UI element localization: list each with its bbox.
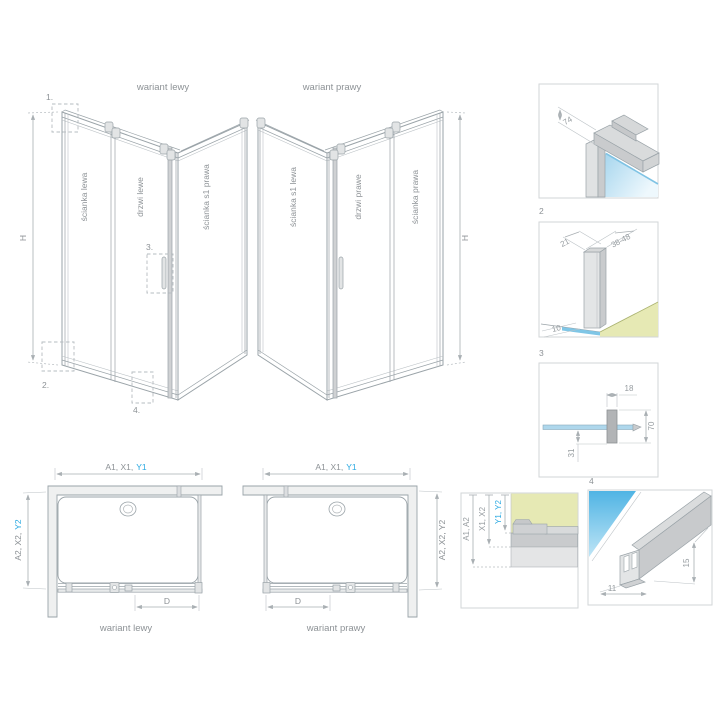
drain-icon <box>120 502 136 516</box>
end-bracket <box>263 583 270 594</box>
bracket-cap <box>513 520 532 525</box>
iso-right-panel-left-label: ścianka s1 lewa <box>288 167 298 227</box>
wall-profile <box>284 486 288 497</box>
end-stop <box>66 583 72 592</box>
door-handle <box>339 257 343 289</box>
wall-profile <box>177 486 181 497</box>
glass-top-view <box>545 527 578 535</box>
plan-right-caption: wariant prawy <box>306 623 366 634</box>
detail-box-4: 4 11 15 <box>588 476 712 605</box>
guide-block <box>333 585 340 591</box>
iso-left-door-label: drzwi lewe <box>135 177 145 217</box>
detail-3-frame <box>539 363 658 477</box>
drain-icon <box>329 502 345 516</box>
plan-right-top-dim: A1, X1,Y1 <box>315 462 357 472</box>
drawing-canvas: wariant lewy ścianka lewa drzwi lewe ści… <box>0 0 720 720</box>
profile-slot <box>632 552 637 569</box>
panel-clamp-icon <box>167 150 175 160</box>
height-dim-label: H <box>18 235 28 241</box>
iso-left-title: wariant lewy <box>136 82 190 93</box>
detail-3-dim-18: 18 <box>625 384 634 393</box>
plan-left-top-dim: A1, X1,Y1 <box>105 462 147 472</box>
door-stile <box>333 148 337 398</box>
detail-2-number: 2 <box>539 206 544 216</box>
profile-layer <box>511 533 578 547</box>
iso-right-side-panel <box>256 118 327 400</box>
detail-3-dim-70: 70 <box>647 421 656 430</box>
section-dim-y: Y1, Y2 <box>494 500 503 524</box>
iso-right-height-dimension: H <box>447 112 470 365</box>
plan-left-caption: wariant lewy <box>99 623 153 634</box>
iso-right-door-label: drzwi prawe <box>353 174 363 220</box>
detail-3-number: 3 <box>539 348 544 358</box>
iso-right-panel-right-label: ścianka prawa <box>410 170 420 225</box>
wall-profile-front <box>584 252 600 328</box>
handle-section <box>607 410 617 443</box>
end-bracket <box>195 583 202 594</box>
iso-left-panel-left-label: ścianka lewa <box>79 172 89 221</box>
glass-section <box>543 425 633 430</box>
plan-left-side-dim: A2, X2,Y2 <box>13 519 23 561</box>
roller-icon <box>113 586 117 590</box>
detail-3-dim-31: 31 <box>567 448 576 457</box>
detail-4-dim-11: 11 <box>608 584 617 593</box>
door-handle <box>162 257 166 289</box>
panel-clamp-icon <box>330 150 338 160</box>
section-dim-x: X1, X2 <box>478 506 487 531</box>
iso-view-left: wariant lewy ścianka lewa drzwi lewe ści… <box>18 82 249 415</box>
iso-left-side-panel <box>178 118 249 400</box>
iso-left-front-panels <box>62 110 180 400</box>
iso-right-front-panels <box>325 110 443 400</box>
outer-layer <box>511 547 578 567</box>
detail-4-number: 4 <box>589 476 594 486</box>
wall-bracket <box>513 524 547 534</box>
panel-clamp-icon <box>257 118 265 128</box>
wall-profile-side <box>600 248 606 328</box>
plan-view-left: A1, X1,Y1 D A2, X2,Y2 wariant lewy <box>13 462 222 634</box>
panel-clamp-icon <box>112 128 120 138</box>
end-stop <box>393 583 399 592</box>
section-reference-box: A1, A2 X1, X2 Y1, Y2 <box>461 493 578 608</box>
plan-view-right: A1, X1,Y1 D A2, X2, Y2 wariant prawy <box>243 462 447 634</box>
panel-clamp-icon <box>240 118 248 128</box>
panel-clamp-icon <box>385 128 393 138</box>
plan-left-door-dim: D <box>164 596 170 606</box>
technical-drawing-sheet: wariant lewy ścianka lewa drzwi lewe ści… <box>0 0 720 720</box>
height-dim-label: H <box>460 235 470 241</box>
side-panel <box>264 495 267 591</box>
iso-left-panel-right-label: ścianka s1 prawa <box>201 164 211 230</box>
guide-block <box>125 585 132 591</box>
detail-marker-1-label: 1. <box>46 92 53 102</box>
detail-marker-2-label: 2. <box>42 380 49 390</box>
wall-profile-front <box>586 138 598 197</box>
detail-box-1: 74 <box>539 84 659 198</box>
detail-box-2: 2 21 38-48 10 <box>539 206 658 337</box>
profile-slot <box>624 555 629 572</box>
detail-4-dim-15: 15 <box>682 558 691 567</box>
side-panel <box>198 495 201 591</box>
section-dim-a: A1, A2 <box>462 517 471 541</box>
detail-marker-3-label: 3. <box>146 242 153 252</box>
door-stile <box>168 148 172 398</box>
iso-view-right: wariant prawy ścianka s1 lewa drzwi praw… <box>256 82 470 400</box>
detail-marker-4-label: 4. <box>133 405 140 415</box>
plan-right-door-dim: D <box>295 596 301 606</box>
detail-box-3: 3 18 70 31 <box>539 348 658 477</box>
roller-icon <box>349 586 353 590</box>
plan-right-side-dim: A2, X2, Y2 <box>437 519 447 560</box>
iso-right-title: wariant prawy <box>302 82 362 93</box>
iso-left-height-dimension: H <box>18 112 58 365</box>
